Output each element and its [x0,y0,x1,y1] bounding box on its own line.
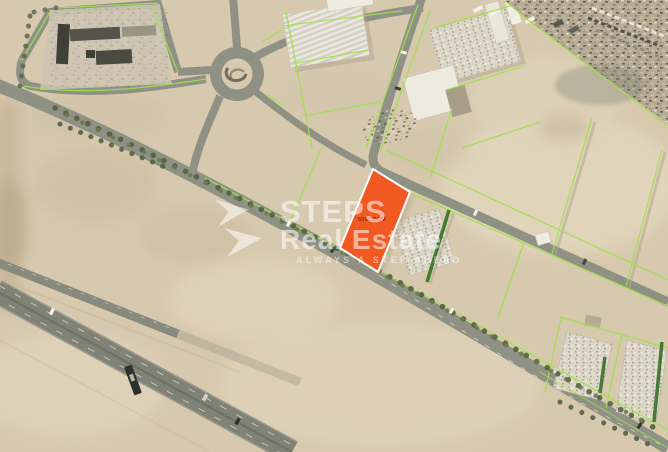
watermark-tagline: ALWAYS A STEP AHEAD [296,255,462,265]
satellite-map-image: 5000 SQM STEPS Real Estate ALWAYS A STEP… [0,0,668,452]
industrial-building-complex [40,4,172,90]
roundabout-n-arm [233,0,237,48]
roundabout [210,47,264,101]
watermark-brand-line2: Real Estate [280,224,442,255]
listing-map-screenshot: 5000 SQM STEPS Real Estate ALWAYS A STEP… [0,0,668,452]
roundabout-w-arm [178,70,211,72]
